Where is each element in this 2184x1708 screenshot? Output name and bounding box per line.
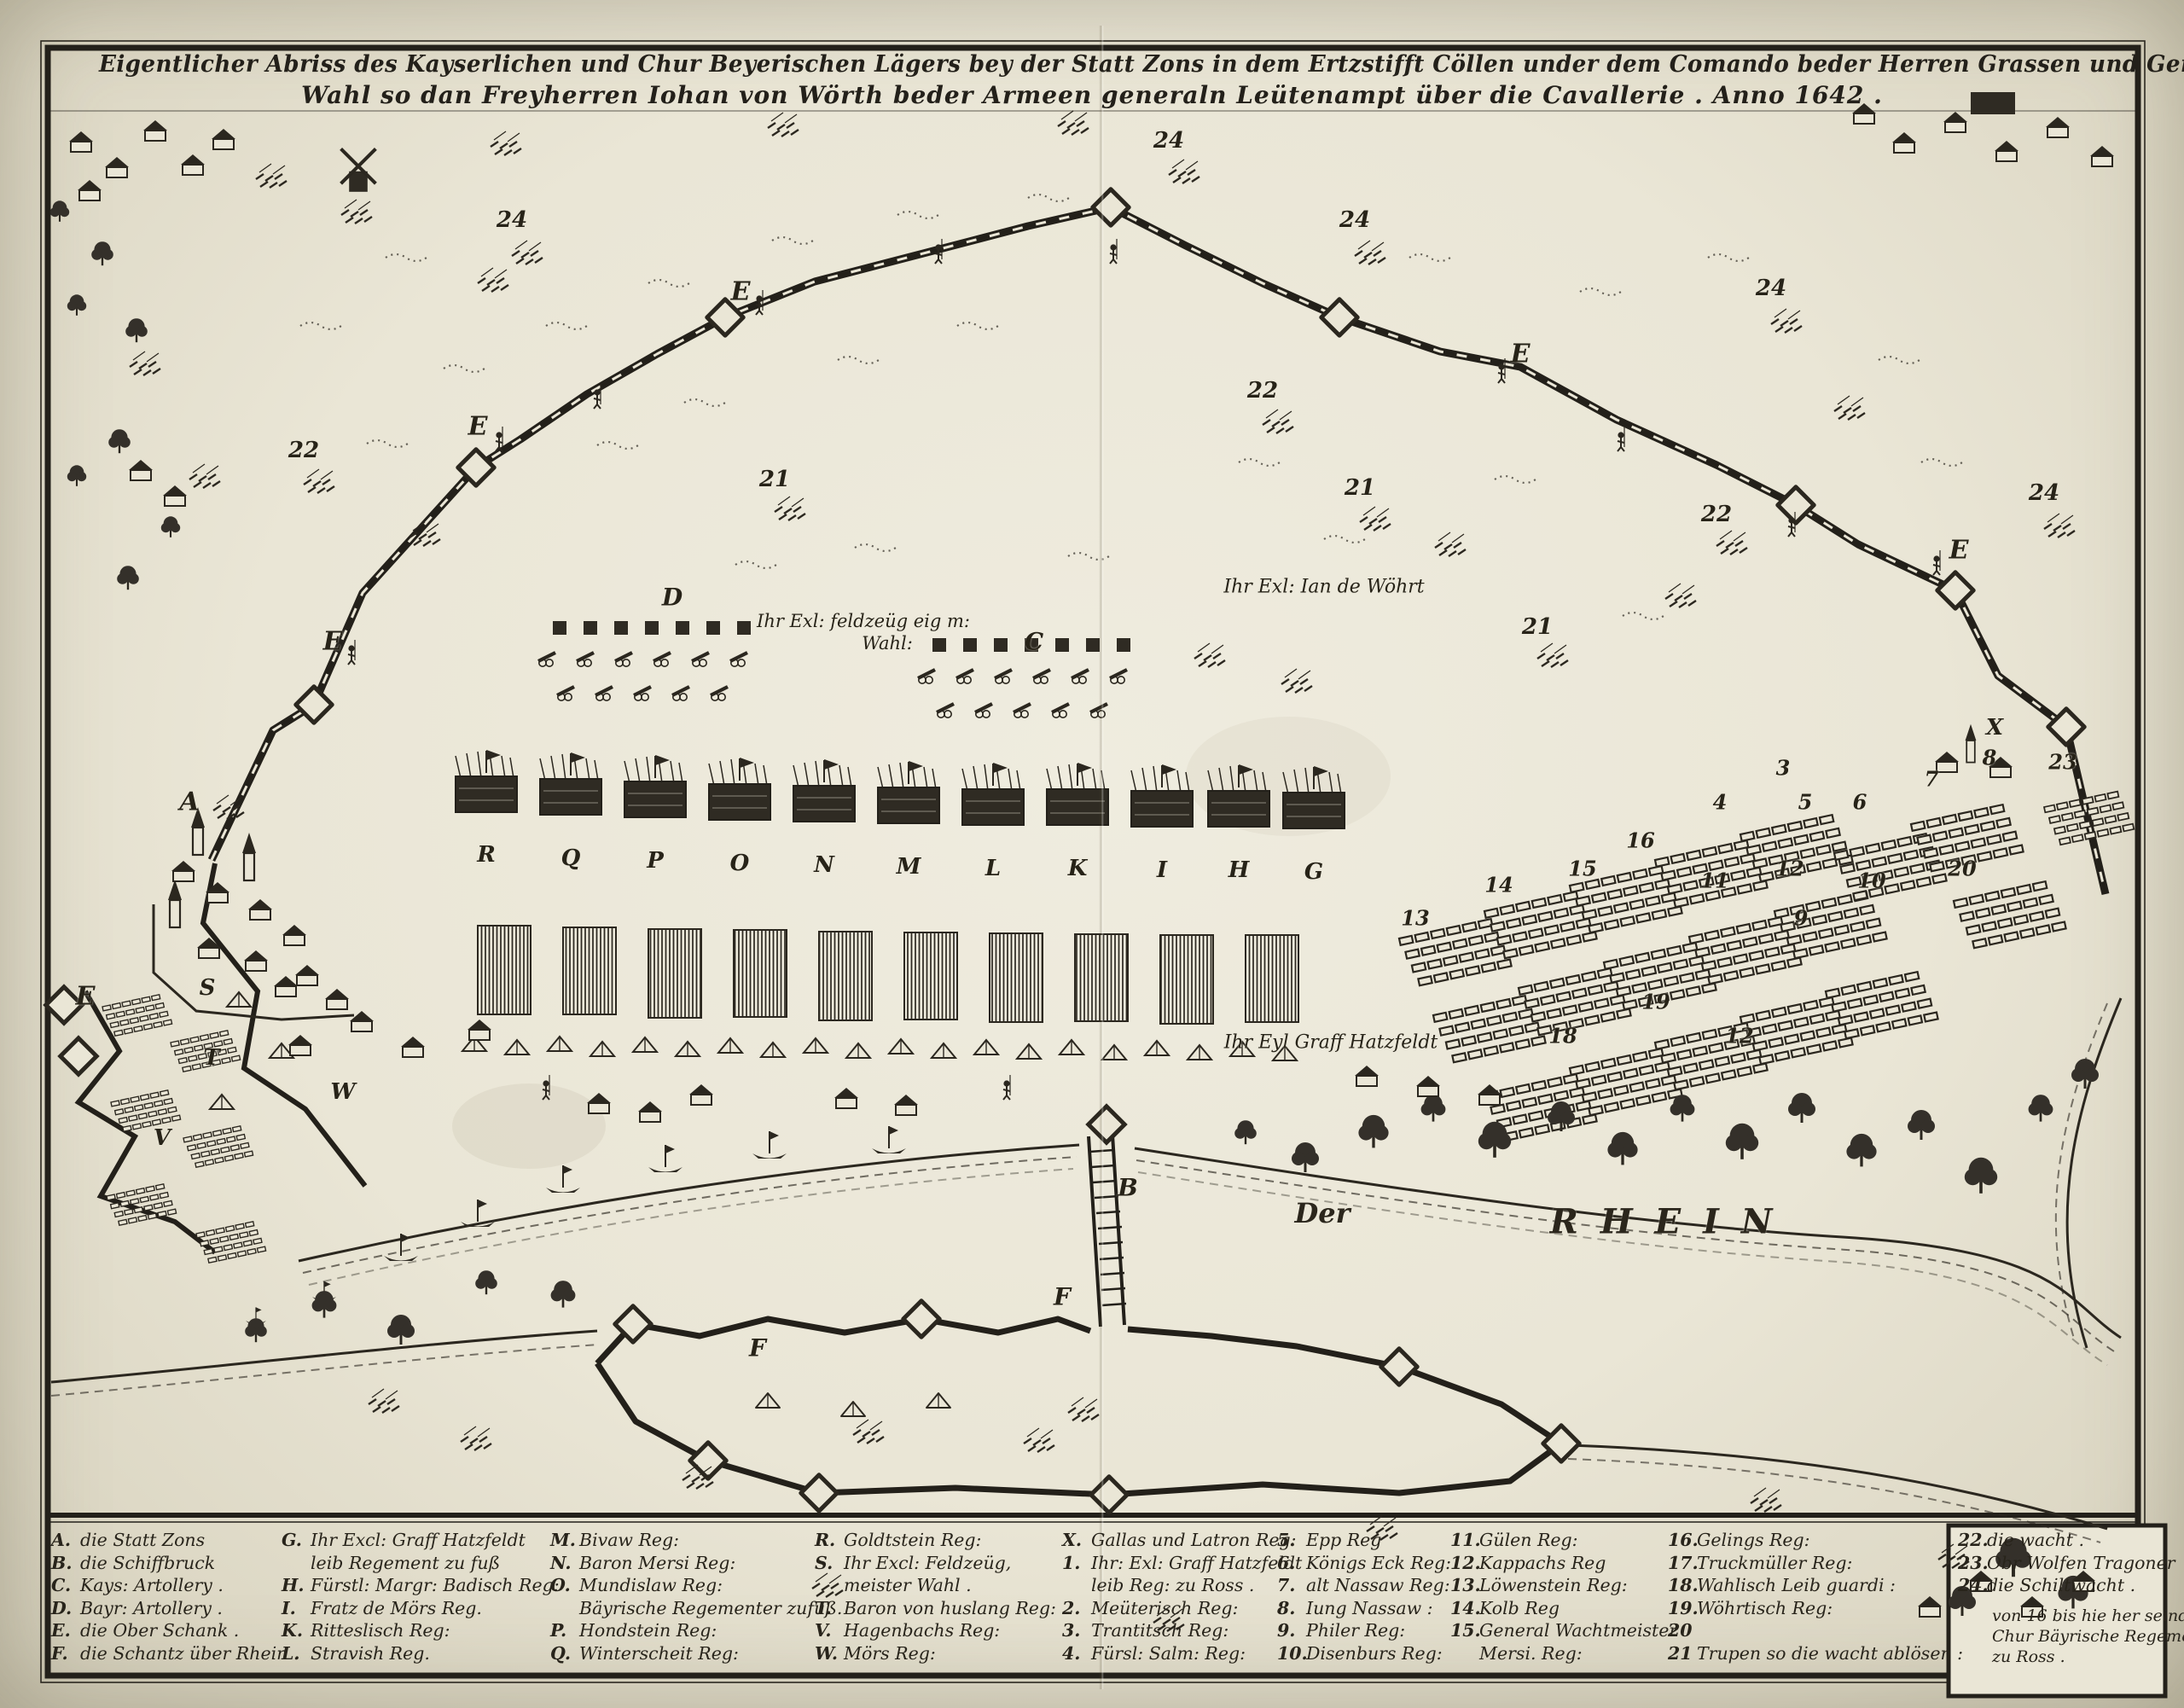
map-key-label: 10 xyxy=(1857,869,1885,893)
map-key-label: 14 xyxy=(1484,873,1513,898)
map-title: Eigentlicher Abriss des Kayserlichen und… xyxy=(68,51,2116,109)
map-key-label: 3 xyxy=(1776,756,1791,781)
map-key-label: K xyxy=(1068,856,1088,881)
tent-barracks xyxy=(478,926,1298,1024)
ship-bridge xyxy=(1089,1107,1126,1327)
map-key-label: P xyxy=(647,848,664,874)
map-key-label: 9 xyxy=(1794,906,1809,931)
map-key-label: 13 xyxy=(1401,906,1429,931)
river-label: RHEIN xyxy=(1550,1202,1795,1242)
map-key-label: D xyxy=(662,584,682,612)
map-key-label: 24 xyxy=(1153,128,1184,154)
map-key-label: I xyxy=(1157,857,1167,883)
map-key-label: R xyxy=(477,842,496,868)
map-key-label: M xyxy=(897,854,921,880)
map-title-line1: Eigentlicher Abriss des Kayserlichen und… xyxy=(99,51,2085,78)
map-key-label: 11 xyxy=(1700,869,1728,893)
map-key-label: 24 xyxy=(1339,207,1370,233)
map-key-label: X xyxy=(1986,715,2003,741)
river-label: Der xyxy=(1295,1197,1350,1229)
map-key-label: E xyxy=(1511,340,1531,369)
map-key-label: S xyxy=(200,975,216,1001)
map-key-label: 16 xyxy=(1626,828,1654,853)
map-key-label: E xyxy=(1949,536,1969,566)
paper-sheet: Eigentlicher Abriss des Kayserlichen und… xyxy=(0,0,2184,1708)
map-key-label: E xyxy=(731,277,751,307)
map-inscription: Ihr Exl: Ian de Wöhrt xyxy=(1223,577,1424,598)
map-key-label: 22 xyxy=(1247,378,1278,404)
map-key-label: 12 xyxy=(1775,857,1804,881)
map-key-label: 8 xyxy=(1983,746,1997,770)
map-key-label: Q xyxy=(561,845,581,871)
map-key-label: F xyxy=(749,1334,766,1362)
legend-right-box xyxy=(1949,1525,2165,1696)
paper-fold-crease xyxy=(1099,26,1104,1689)
river-rhine xyxy=(51,998,2121,1542)
map-key-label: 12 xyxy=(1725,1024,1753,1049)
map-key-label: 24 xyxy=(497,207,527,233)
map-key-label: E xyxy=(76,982,96,1012)
map-key-label: F xyxy=(1054,1283,1071,1311)
map-key-label: 18 xyxy=(1548,1024,1577,1049)
map-key-label: 21 xyxy=(1522,614,1553,640)
map-key-label: 6 xyxy=(1853,790,1867,815)
map-key-label: 23 xyxy=(2048,750,2077,775)
engraving-page: Eigentlicher Abriss des Kayserlichen und… xyxy=(0,0,2184,1708)
map-key-label: 5 xyxy=(1798,790,1813,815)
map-key-label: E xyxy=(323,627,343,657)
map-key-label: G xyxy=(1304,859,1323,885)
map-key-label: 15 xyxy=(1568,857,1596,881)
map-title-line2: Wahl so dan Freyherren Iohan von Wörth b… xyxy=(68,81,2116,109)
map-key-label: H xyxy=(1228,857,1250,883)
picket-lines xyxy=(300,195,1962,619)
map-key-label: 21 xyxy=(759,467,790,492)
map-key-label: 21 xyxy=(1345,475,1375,501)
map-key-label: 22 xyxy=(1701,502,1732,527)
map-inscription: Wahl: xyxy=(862,633,913,654)
map-key-label: E xyxy=(468,412,488,442)
map-key-label: T xyxy=(203,1045,219,1071)
map-inscription: Ihr Eyl Graff Hatzfeldt xyxy=(1224,1032,1438,1054)
map-key-label: C xyxy=(1025,628,1043,656)
map-key-label: 22 xyxy=(288,438,319,463)
map-key-label: V xyxy=(154,1125,171,1151)
rhine-fort xyxy=(597,1301,1579,1513)
map-key-label: 24 xyxy=(1756,276,1786,301)
map-key-label: L xyxy=(985,856,1001,881)
map-key-label: 19 xyxy=(1641,990,1670,1014)
map-key-label: A xyxy=(179,787,199,817)
map-key-label: 24 xyxy=(2029,480,2059,506)
map-key-label: W xyxy=(330,1079,355,1105)
map-key-label: B xyxy=(1118,1174,1138,1202)
engraving-artwork xyxy=(0,0,2184,1708)
map-key-label: O xyxy=(730,851,750,876)
map-key-label: 4 xyxy=(1713,790,1728,815)
map-key-label: N xyxy=(814,852,834,878)
map-key-label: 20 xyxy=(1948,857,1976,881)
map-inscription: Ihr Exl: feldzeüg eig m: xyxy=(757,611,970,631)
map-key-label: 7 xyxy=(1925,767,1939,792)
